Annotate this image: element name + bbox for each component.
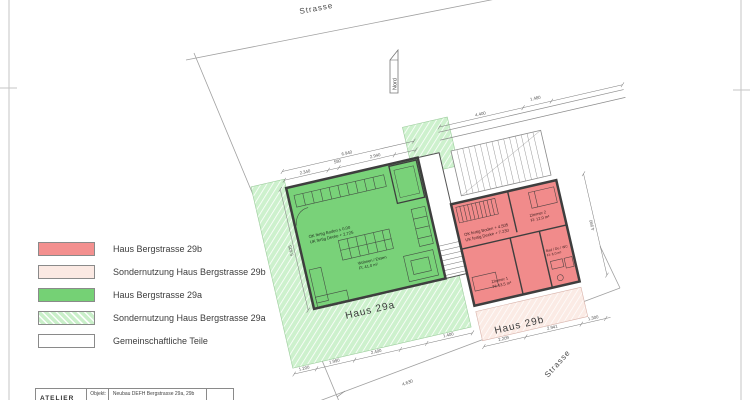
legend-label: Haus Bergstrasse 29a [113,290,202,300]
buildings-group: OK fertig Boden ± 0.00 UK fertig Decke +… [243,76,675,392]
legend-swatch-gemeinschaftlich [38,334,95,348]
object-label: Objekt: [87,389,109,400]
dimension-label: 580 [333,158,342,165]
title-block-logo-cell: ATELIER [36,389,87,400]
legend-label: Sondernutzung Haus Bergstrasse 29a [113,313,266,323]
boundary-line-north [186,0,516,60]
legend-label: Haus Bergstrasse 29b [113,244,202,254]
legend-label: Sondernutzung Haus Bergstrasse 29b [113,267,266,277]
site-plan-sheet: OK fertig Boden ± 0.00 UK fertig Decke +… [0,0,750,400]
legend-item-sonder-29a: Sondernutzung Haus Bergstrasse 29a [38,311,266,325]
north-label: Nord [393,78,399,90]
legend-item-gemeinschaftlich: Gemeinschaftliche Teile [38,334,208,348]
legend-item-haus-29b: Haus Bergstrasse 29b [38,242,202,256]
title-block: ATELIER Objekt: Neubau DEFH Bergstrasse … [35,388,234,400]
street-label-top: Strasse [299,1,334,16]
legend-swatch-haus-29b [38,242,95,256]
object-value: Neubau DEFH Bergstrasse 29a, 29b [109,389,208,400]
legend-swatch-sonder-29b [38,265,95,279]
legend-swatch-sonder-29a [38,311,95,325]
street-label-bottom: Strasse [543,348,573,379]
legend-item-sonder-29b: Sondernutzung Haus Bergstrasse 29b [38,265,266,279]
legend-label: Gemeinschaftliche Teile [113,336,208,346]
dimension-label: 1.480 [529,94,541,101]
building-b [451,180,580,306]
boundary-line-east-stub [600,246,620,288]
legend-swatch-haus-29a [38,288,95,302]
legend-item-haus-29a: Haus Bergstrasse 29a [38,288,202,302]
title-block-empty-cell [207,389,233,400]
boundary-dimension-label: 4.630 [401,378,414,387]
logo-text: ATELIER [40,395,74,400]
north-arrow-icon: Nord [390,50,399,93]
